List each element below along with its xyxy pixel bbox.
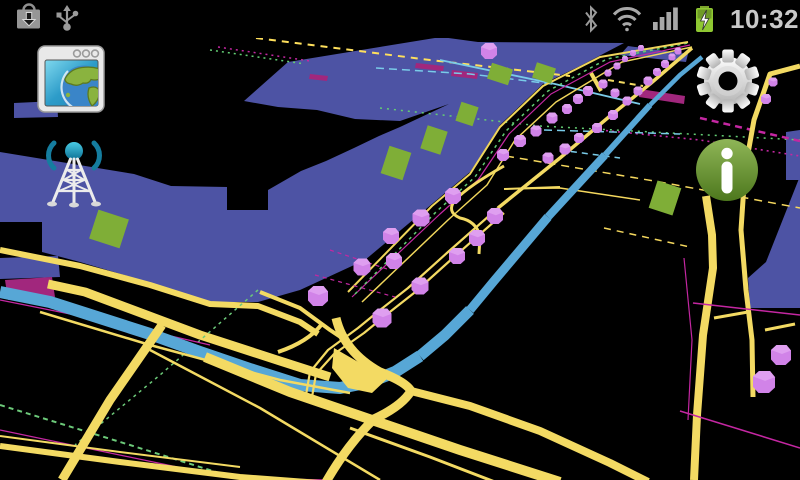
svg-text:10:32: 10:32 bbox=[730, 4, 799, 34]
